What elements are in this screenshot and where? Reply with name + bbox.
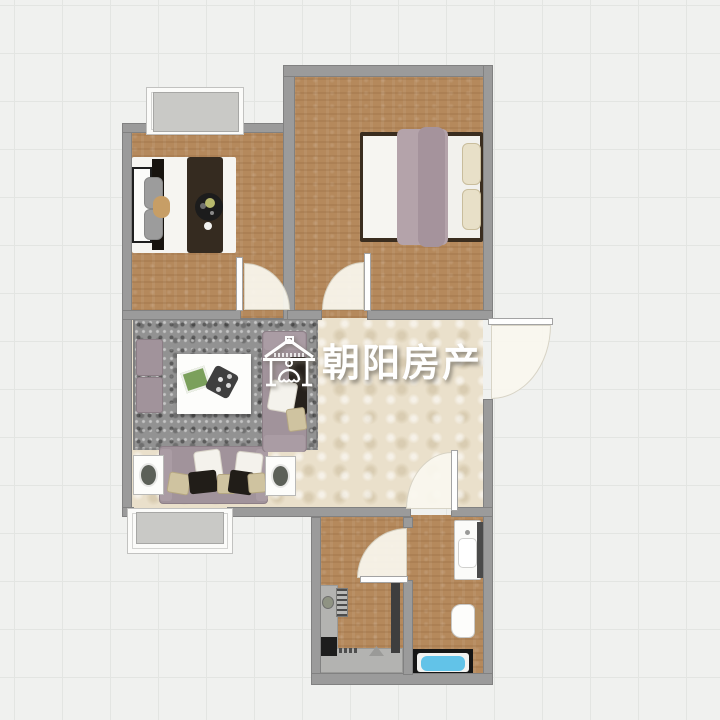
bed-right-pillow-2 <box>462 189 481 230</box>
house-logo-icon <box>262 336 316 390</box>
tray-dots <box>218 377 223 382</box>
bay-window-top-slab <box>153 92 239 132</box>
bay-window-bottom-slab <box>136 512 224 544</box>
wall-lower-b <box>227 507 411 517</box>
lounge-chair-2 <box>136 377 163 413</box>
speaker-cone <box>139 463 158 487</box>
floor-plan-canvas: 朝阳房产 <box>0 0 720 720</box>
bed-left-cup <box>204 222 212 230</box>
coffee-table-books <box>180 366 210 394</box>
bed-right-blanket-runner <box>418 127 445 247</box>
wall-bottom <box>311 673 493 685</box>
wall-right-upper <box>483 65 493 318</box>
sofa-cushion-tan-3 <box>247 472 267 493</box>
wall-mid-b <box>287 310 322 320</box>
wall-top-right <box>283 65 493 77</box>
sofa-right-armrest-bottom <box>264 435 305 452</box>
tray-flowers <box>205 198 215 208</box>
wall-top-left-a <box>122 123 148 133</box>
entry-door-swing <box>491 325 551 399</box>
kitchen-sink <box>322 596 334 609</box>
speaker-right <box>265 456 296 496</box>
speaker-left <box>133 455 164 495</box>
speaker-cone <box>271 464 290 488</box>
wall-mid-c <box>367 310 493 320</box>
watermark: 朝阳房产 <box>262 336 482 390</box>
bed-left <box>132 157 236 253</box>
kitchen-stove <box>321 637 337 656</box>
bed-right-pillow-1 <box>462 143 481 185</box>
wall-right-lower <box>483 399 493 685</box>
kitchen-dish-rack <box>336 588 348 617</box>
wall-mid-a <box>122 310 241 320</box>
wall-bedroom-divider <box>283 65 295 320</box>
kitchen-tall-cabinet <box>391 583 400 653</box>
bathtub <box>412 649 473 675</box>
sink-faucet <box>465 530 470 535</box>
bed-right-sheet <box>363 136 399 238</box>
bed-left-bolster <box>153 196 170 218</box>
sofa-bottom <box>159 446 268 504</box>
toilet-bowl <box>451 604 475 638</box>
wall-kitchen-left <box>311 517 321 683</box>
coffee-table-tray <box>204 364 239 399</box>
wall-divider-stub <box>403 517 413 528</box>
kitchen-utensils <box>339 648 359 653</box>
entry-door-leaf <box>488 318 553 325</box>
wall-kitchen-bath-divider <box>403 580 413 675</box>
sofa-right-pillow-tan <box>285 407 307 432</box>
coffee-table <box>177 354 251 414</box>
sofa-cushion-black-1 <box>188 470 218 495</box>
bathroom-door-leaf <box>451 450 458 511</box>
kitchen-door-leaf <box>360 576 408 583</box>
bedroom-left-door-leaf <box>236 257 243 311</box>
bathtub-water <box>421 656 465 671</box>
wall-left <box>122 123 132 517</box>
sink-basin <box>458 538 477 568</box>
lounge-chair-1 <box>136 339 163 376</box>
watermark-brand-text: 朝阳房产 <box>322 344 482 382</box>
bed-right <box>360 132 483 242</box>
bedroom-right-door-leaf <box>364 253 371 311</box>
